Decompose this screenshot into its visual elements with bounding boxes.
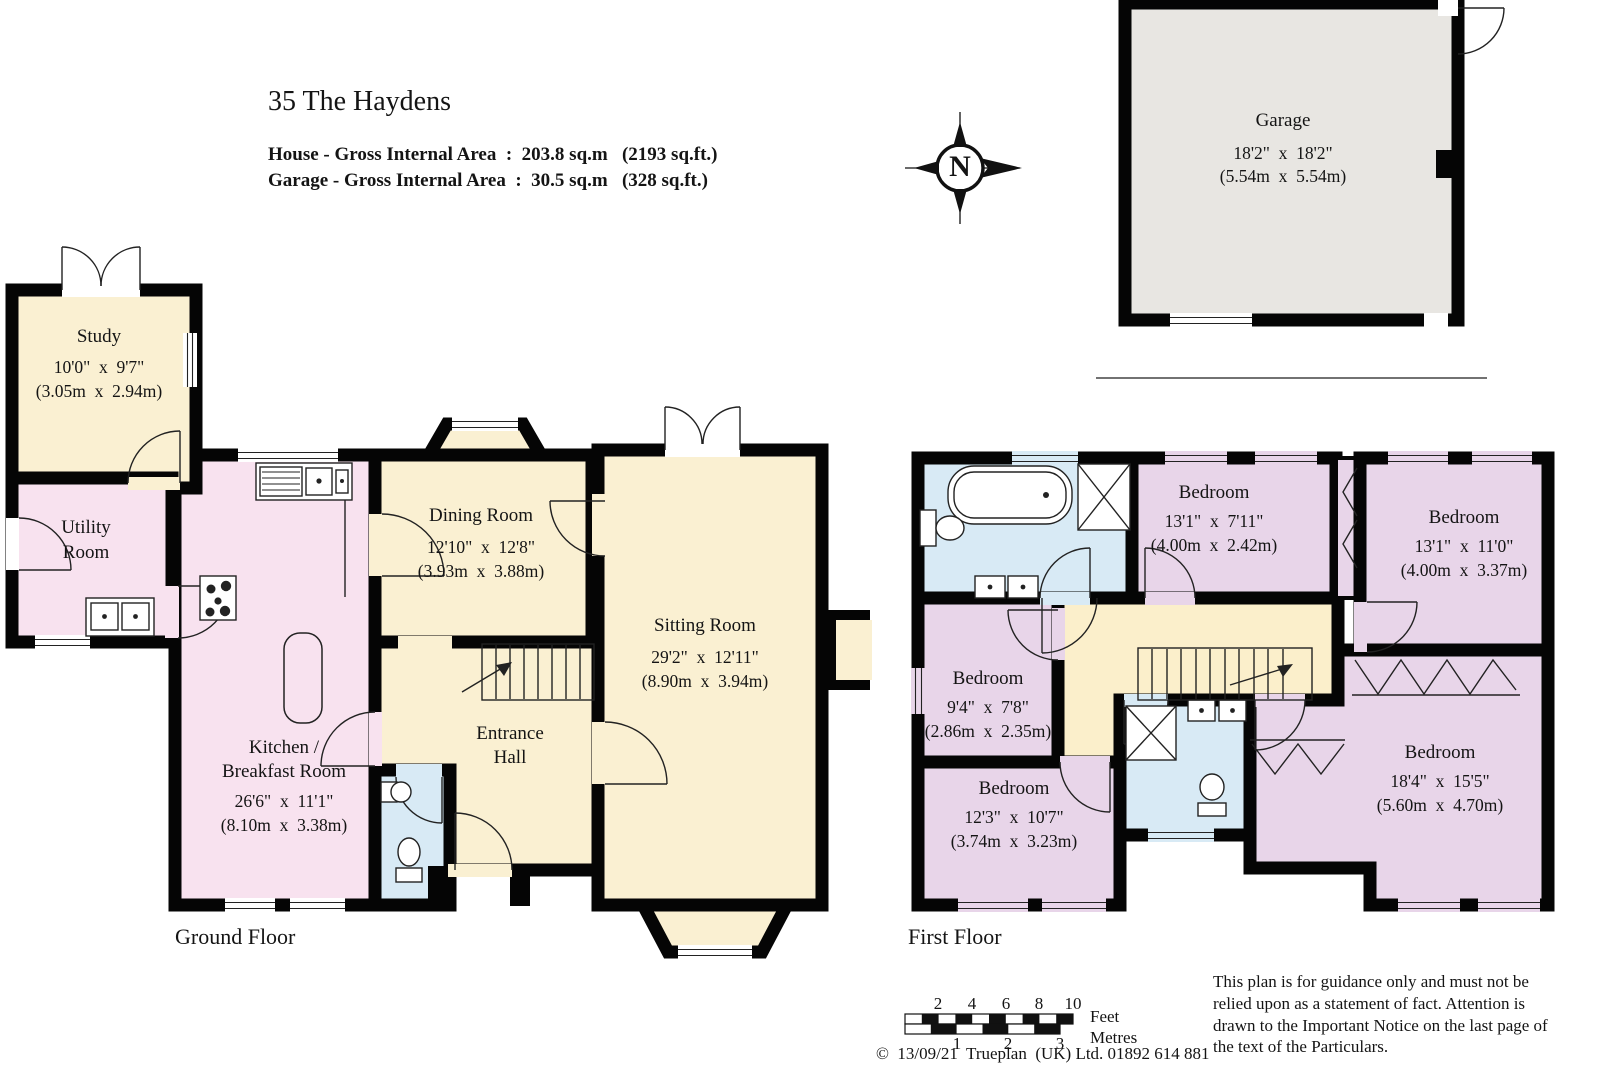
scale-feet-tick-8: 8 [1035,994,1044,1014]
bedroom-top-mid-imperial: 13'1" x 7'11" [1165,511,1264,532]
bedroom-top-right-label: Bedroom [1429,507,1500,529]
compass-north-letter: N [949,150,971,184]
dining-dim-metric: (3.93m x 3.88m) [418,561,544,582]
ground-floor-plan [6,247,872,959]
utility-label-line2: Room [63,542,109,564]
scale-feet-tick-2: 2 [934,994,943,1014]
kitchen-island [284,633,322,723]
garage-door-opening [1438,0,1458,16]
entrance-label-line2: Hall [494,747,527,769]
bedroom-bottom-right-imperial: 18'4" x 15'5" [1390,771,1489,792]
sitting-dim-metric: (8.90m x 3.94m) [642,671,768,692]
bedroom-bottom-left-imperial: 12'3" x 10'7" [964,807,1063,828]
bedroom-top-right-imperial: 13'1" x 11'0" [1415,536,1514,557]
bedroom-mid-left-metric: (2.86m x 2.35m) [925,721,1051,742]
scale-feet-tick-4: 4 [968,994,977,1014]
floorplan-svg [0,0,1603,1080]
garage-dim-metric: (5.54m x 5.54m) [1220,166,1346,187]
kitchen-sink [256,463,352,500]
bedroom-bottom-right-metric: (5.60m x 4.70m) [1377,795,1503,816]
porch-wall [428,866,448,906]
garage-dim-imperial: 18'2" x 18'2" [1233,143,1332,164]
copyright-line: © 13/09/21 Trueplan (UK) Ltd. 01892 614 … [876,1044,1210,1064]
garage-label: Garage [1256,110,1311,132]
dining-label: Dining Room [429,505,533,527]
scale-feet-tick-10: 10 [1065,994,1082,1014]
compass-west-point [914,161,939,175]
house-area-line: House - Gross Internal Area : 203.8 sq.m… [268,144,718,166]
disclaimer-text: This plan is for guidance only and must … [1213,971,1565,1058]
bedroom-bottom-right-label: Bedroom [1405,742,1476,764]
ground-floor-caption: Ground Floor [175,924,295,950]
kitchen-dim-imperial: 26'6" x 11'1" [235,791,334,812]
bedroom-top-right-metric: (4.00m x 3.37m) [1401,560,1527,581]
garage-window [1170,313,1252,327]
dining-dim-imperial: 12'10" x 12'8" [427,537,535,558]
kitchen-hob [200,576,236,620]
kitchen-label-line1: Kitchen / [249,737,319,759]
kitchen-label-line2: Breakfast Room [222,761,346,783]
scale-feet-word: Feet [1090,1007,1119,1027]
study-dim-imperial: 10'0" x 9'7" [54,357,145,378]
scale-bar [905,1014,1073,1034]
study-dim-metric: (3.05m x 2.94m) [36,381,162,402]
sitting-dim-imperial: 29'2" x 12'11" [651,647,758,668]
kitchen-dim-metric: (8.10m x 3.38m) [221,815,347,836]
utility-sink [86,598,154,636]
compass-north-point [953,122,967,147]
bedroom-mid-left-label: Bedroom [953,668,1024,690]
scale-feet-tick-6: 6 [1002,994,1011,1014]
garage-area-line: Garage - Gross Internal Area : 30.5 sq.m… [268,170,708,192]
porch-wall [510,866,530,906]
bedroom-mid-left-imperial: 9'4" x 7'8" [947,697,1029,718]
floorplan-page: 35 The Haydens House - Gross Internal Ar… [0,0,1603,1080]
bedroom-bottom-left-metric: (3.74m x 3.23m) [951,831,1077,852]
utility-label-line1: Utility [61,517,111,539]
bedroom-top-mid-metric: (4.00m x 2.42m) [1151,535,1277,556]
garage-door-arc [1458,8,1504,54]
compass-south-point [953,189,967,214]
first-floor-caption: First Floor [908,924,1002,950]
sitting-label: Sitting Room [654,615,756,637]
entrance-label-line1: Entrance [476,723,544,745]
bedroom-top-mid-label: Bedroom [1179,482,1250,504]
page-title: 35 The Haydens [268,86,451,118]
study-label: Study [77,326,121,348]
bedroom-bottom-left-label: Bedroom [979,778,1050,800]
